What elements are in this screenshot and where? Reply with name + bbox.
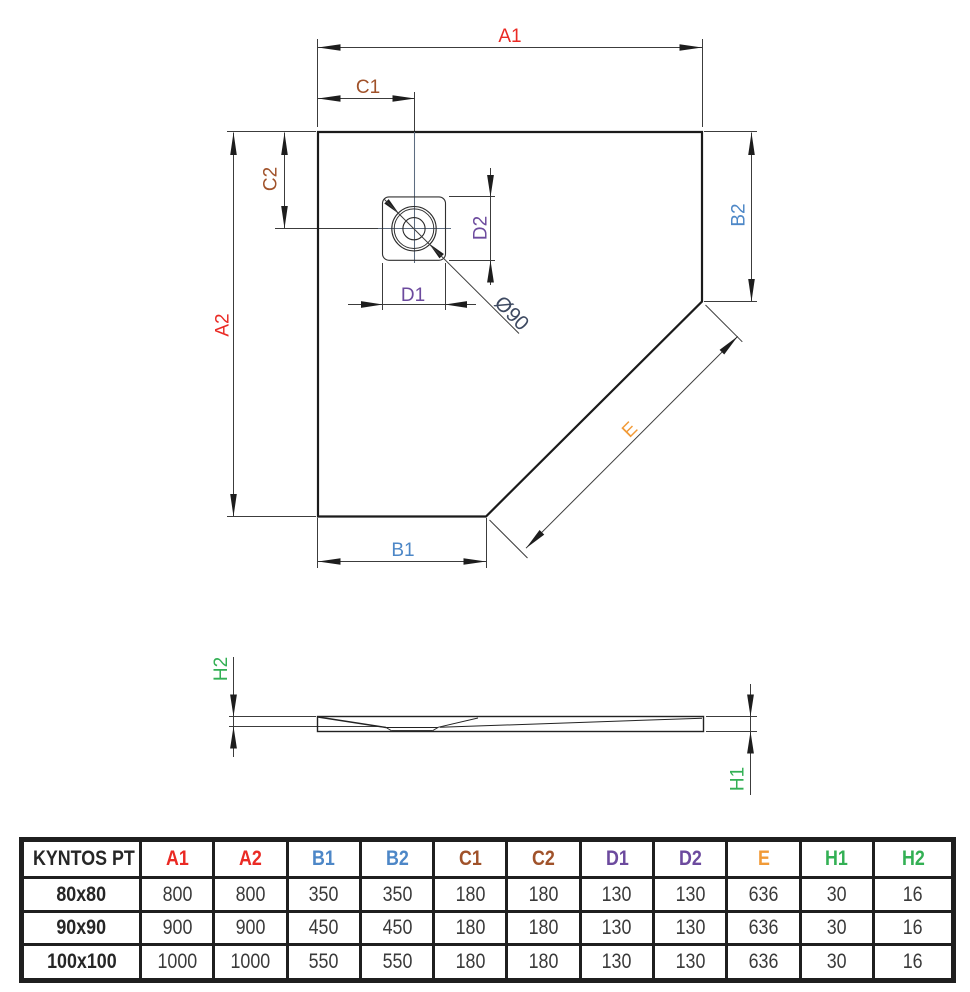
svg-text:B2: B2 xyxy=(729,203,750,226)
svg-text:E: E xyxy=(618,418,642,442)
svg-text:D2: D2 xyxy=(471,216,492,240)
svg-text:C1: C1 xyxy=(356,77,380,98)
svg-text:H1: H1 xyxy=(728,767,749,791)
svg-text:A1: A1 xyxy=(498,26,521,47)
svg-text:Ø90: Ø90 xyxy=(490,292,534,336)
svg-text:B1: B1 xyxy=(391,540,414,561)
svg-text:C2: C2 xyxy=(261,167,282,191)
svg-text:D1: D1 xyxy=(401,285,425,306)
svg-text:H2: H2 xyxy=(211,657,232,681)
svg-text:A2: A2 xyxy=(213,313,234,336)
